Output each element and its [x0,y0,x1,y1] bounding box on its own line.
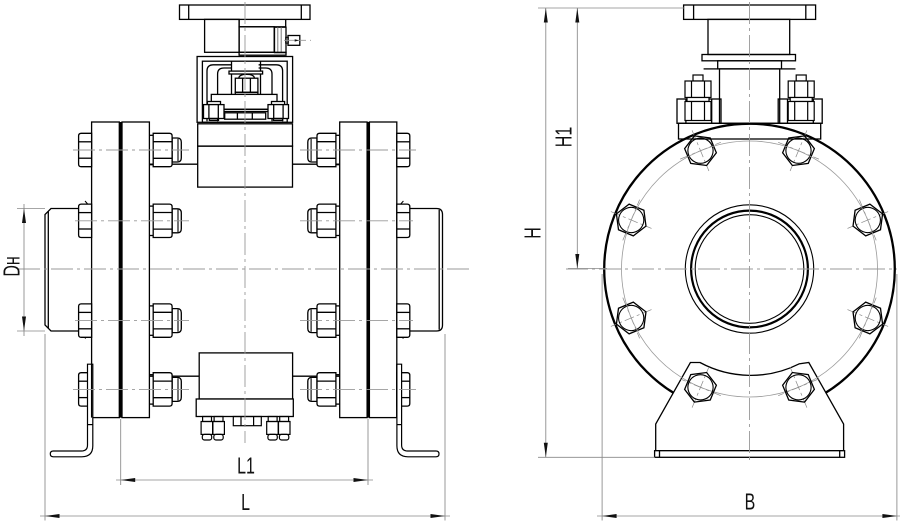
svg-text:L1: L1 [237,454,255,480]
svg-text:B: B [745,489,756,515]
svg-text:L: L [241,490,250,516]
svg-text:H1: H1 [552,127,578,147]
svg-text:Dн: Dн [0,256,25,276]
svg-text:H: H [521,227,547,239]
